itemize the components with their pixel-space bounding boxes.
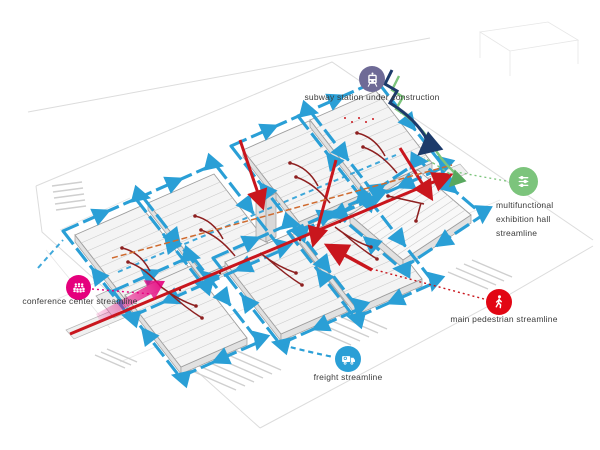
subway-station-icon <box>359 66 385 92</box>
circulation-diagram: subway station under construction multif… <box>0 0 600 450</box>
conference-label: conference center streamline <box>0 296 160 306</box>
exhibition-streamline-icon <box>509 167 538 196</box>
audience-icon <box>71 280 87 296</box>
train-icon <box>364 71 381 88</box>
truck-icon <box>340 351 357 368</box>
pedestrian-label: main pedestrian streamline <box>424 314 584 324</box>
walking-person-icon <box>491 294 507 310</box>
exhibition-label: multifunctional exhibition hall streamli… <box>496 198 576 240</box>
sliders-icon <box>515 173 532 190</box>
freight-entry-west <box>38 240 63 268</box>
pedestrian-streamline-icon <box>486 289 512 315</box>
subway-label: subway station under construction <box>287 92 457 102</box>
freight-streamline-icon <box>335 346 361 372</box>
freight-exit-line <box>282 345 333 357</box>
freight-label: freight streamline <box>273 372 423 382</box>
